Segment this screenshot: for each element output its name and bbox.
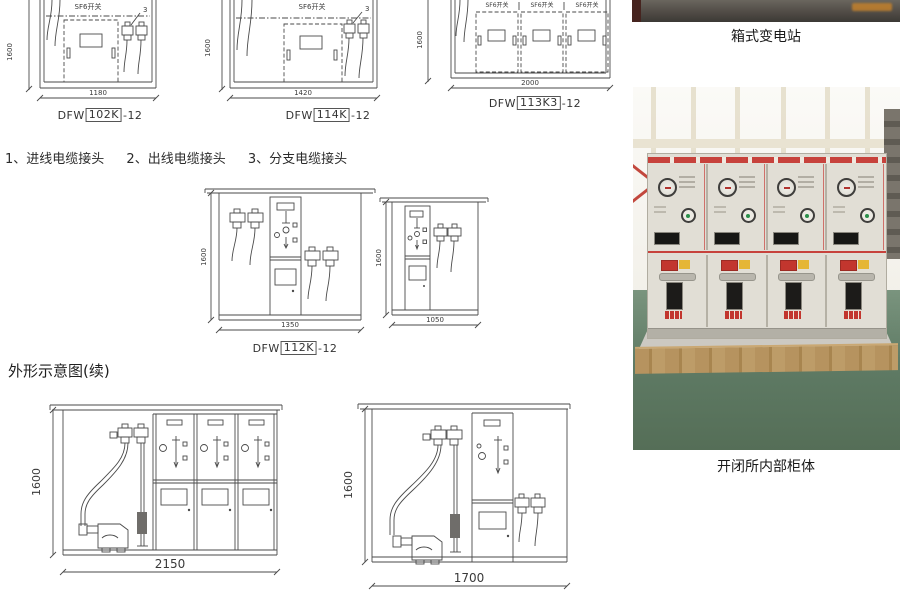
model-label-dfw114k: DFW 114K -12 (286, 108, 371, 122)
box-substation-photo (632, 0, 900, 22)
model-prefix: DFW (489, 97, 516, 110)
cable-joint-legend: 1、进线电缆接头 2、出线电缆接头 3、分支电缆接头 (5, 148, 365, 167)
model-boxed: 102K (86, 108, 122, 122)
door-handle (659, 273, 696, 281)
indicator-dot (686, 214, 690, 218)
label-sticker (654, 206, 666, 216)
warning-label (780, 260, 797, 271)
red-trim-line (764, 164, 765, 250)
red-nameplate (725, 311, 742, 319)
indicator-gauge (800, 208, 815, 223)
hazard-triangle-label (858, 260, 869, 269)
vent-slot (845, 282, 862, 310)
drawing-dfw113k-canvas: 1600 SF6开关 SF6开关 SF6开关 2000 (418, 0, 633, 94)
cabinet-base (648, 328, 886, 338)
callout-3: 3 (143, 6, 147, 14)
switchgear-photo (633, 87, 900, 450)
height-dimension: 1600 (30, 468, 43, 496)
model-prefix: DFW (253, 342, 280, 355)
model-suffix: -12 (123, 109, 142, 122)
cabinet-panel-upper (767, 164, 827, 250)
height-dimension: 1600 (342, 471, 355, 499)
cabinet-panel-lower (827, 255, 885, 327)
label-sticker (714, 206, 726, 216)
cabinet-panel-upper (708, 164, 768, 250)
drawing-dfw114k: 1600 SF6开关 3 1420 DFW 114K -12 (192, 0, 397, 130)
wall-beam (633, 139, 900, 148)
watermark (852, 3, 892, 11)
height-dimension: 1600 (416, 31, 424, 49)
width-dimension: 1700 (454, 571, 485, 585)
box-substation-caption: 箱式变电站 (632, 26, 900, 46)
red-nameplate (844, 311, 861, 319)
red-nameplate (784, 311, 801, 319)
section-title: 外形示意图(续) (8, 360, 110, 381)
indicator-dot (865, 214, 869, 218)
display-window (714, 232, 740, 245)
sf6-switch-label: SF6开关 (530, 1, 553, 9)
red-trim-line (704, 164, 705, 250)
width-dimension: 2150 (155, 557, 186, 571)
cabinet-panel-lower (767, 255, 827, 327)
model-boxed: 112K (281, 341, 317, 355)
label-sticker (739, 176, 755, 190)
height-dimension: 1600 (6, 43, 14, 61)
width-dimension: 1350 (281, 321, 299, 329)
drawing-front-2150-canvas: 1600 2150 (22, 400, 307, 588)
sf6-switch-label: SF6开关 (575, 1, 598, 9)
indicator-dot (746, 214, 750, 218)
model-suffix: -12 (318, 342, 337, 355)
display-window (833, 232, 859, 245)
model-boxed: 113K3 (517, 96, 561, 110)
pressure-gauge (718, 178, 737, 197)
warning-label (661, 260, 678, 271)
display-window (654, 232, 680, 245)
drawing-dfw112k: 1600 1350 DFW 112K -12 (203, 185, 378, 360)
model-label-dfw112k: DFW 112K -12 (253, 341, 338, 355)
red-trim-line (883, 164, 884, 250)
vent-slot (726, 282, 743, 310)
red-trim-line (823, 164, 824, 250)
cabinet-panel-upper (827, 164, 885, 250)
label-sticker (833, 206, 845, 216)
drawing-front-2150: 1600 2150 (22, 400, 307, 595)
door-handle (838, 273, 875, 281)
gauge-needle (725, 187, 731, 189)
width-dimension: 1420 (294, 89, 312, 97)
sf6-switch-label: SF6开关 (485, 1, 508, 9)
indicator-gauge (741, 208, 756, 223)
wood-pallet (635, 343, 898, 374)
indicator-gauge (860, 208, 875, 223)
warning-label (840, 260, 857, 271)
drawing-dfw102k-canvas: 1600 SF6开关 3 1180 (0, 0, 180, 104)
drawing-dfw114k-canvas: 1600 SF6开关 3 1420 (192, 0, 397, 104)
model-prefix: DFW (58, 109, 85, 122)
vent-slot (785, 282, 802, 310)
gauge-needle (844, 187, 850, 189)
door-handle (719, 273, 756, 281)
model-suffix: -12 (562, 97, 581, 110)
height-dimension: 1600 (204, 39, 212, 57)
vent-slot (666, 282, 683, 310)
width-dimension: 2000 (521, 79, 539, 87)
warning-label (721, 260, 738, 271)
width-dimension: 1180 (89, 89, 107, 97)
model-prefix: DFW (286, 109, 313, 122)
drawing-side-1050: 1600 1050 (378, 194, 490, 344)
height-dimension: 1600 (375, 249, 383, 267)
model-label-dfw102k: DFW 102K -12 (58, 108, 143, 122)
legend-item-2: 2、出线电缆接头 (126, 152, 225, 167)
drawing-front-1700-canvas: 1600 1700 (338, 400, 598, 606)
drawing-dfw113k: 1600 SF6开关 SF6开关 SF6开关 2000 DFW 113K3 -1… (418, 0, 633, 118)
legend-item-1: 1、进线电缆接头 (5, 152, 104, 167)
indicator-dot (805, 214, 809, 218)
hazard-triangle-label (798, 260, 809, 269)
cabinet-panel-lower (708, 255, 768, 327)
photo-dark-band (632, 0, 641, 22)
pressure-gauge (658, 178, 677, 197)
sf6-switch-label: SF6开关 (299, 2, 326, 11)
drawing-dfw102k: 1600 SF6开关 3 1180 DFW 102K -12 (0, 0, 180, 130)
gauge-needle (665, 187, 671, 189)
legend-item-3: 3、分支电缆接头 (248, 152, 347, 167)
pressure-gauge (837, 178, 856, 197)
door-handle (778, 273, 815, 281)
label-sticker (679, 176, 695, 190)
cabinet-red-banner (648, 157, 886, 163)
model-label-dfw113k: DFW 113K3 -12 (489, 96, 581, 110)
drawing-side-1050-canvas: 1600 1050 (378, 194, 490, 336)
gauge-needle (784, 187, 790, 189)
label-sticker (858, 176, 874, 190)
switchgear-cabinet (647, 153, 887, 339)
drawing-front-1700: 1600 1700 (338, 400, 598, 612)
drawing-dfw112k-canvas: 1600 1350 (203, 185, 378, 337)
label-sticker (798, 176, 814, 190)
width-dimension: 1050 (426, 316, 444, 324)
label-sticker (773, 206, 785, 216)
model-boxed: 114K (314, 108, 350, 122)
cabinet-red-trim (648, 251, 886, 253)
indicator-gauge (681, 208, 696, 223)
switchgear-caption: 开闭所内部柜体 (632, 456, 900, 476)
callout-3: 3 (365, 5, 369, 13)
pressure-gauge (777, 178, 796, 197)
red-nameplate (665, 311, 682, 319)
height-dimension: 1600 (200, 248, 208, 266)
hazard-triangle-label (739, 260, 750, 269)
display-window (773, 232, 799, 245)
sf6-switch-label: SF6开关 (75, 2, 102, 11)
hazard-triangle-label (679, 260, 690, 269)
cabinet-panel-upper (648, 164, 708, 250)
model-suffix: -12 (351, 109, 370, 122)
cabinet-panel-lower (648, 255, 708, 327)
